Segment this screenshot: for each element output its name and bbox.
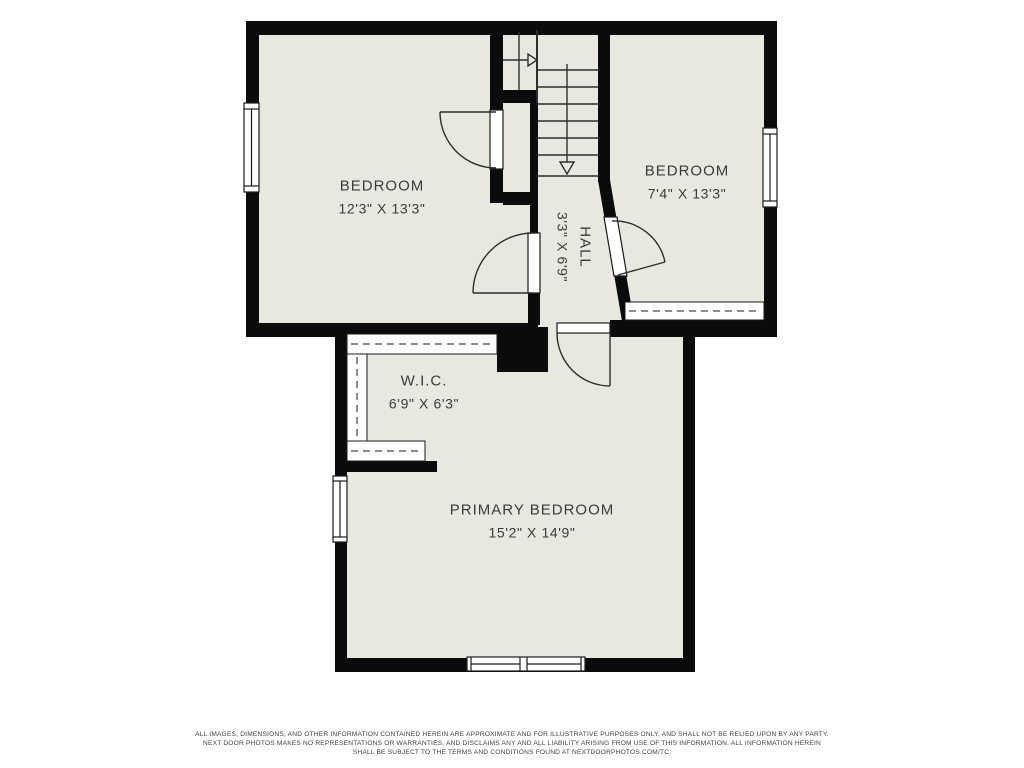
bedroom-hall-wall-stub [528, 293, 540, 325]
window-bedroom-right [763, 128, 777, 207]
upper-top-wall-thin [503, 21, 538, 27]
disclaimer-line-1: ALL IMAGES, DIMENSIONS, AND OTHER INFORM… [0, 731, 1024, 740]
stair-right-wall [598, 30, 610, 182]
room-dimensions: 3'3" X 6'9" [555, 212, 571, 282]
room-dimensions: 6'9" X 6'3" [389, 396, 459, 412]
label-bedroom-left: BEDROOM 12'3" X 13'3" [339, 178, 426, 217]
disclaimer-line-3: SHALL BE SUBJECT TO THE TERMS AND CONDIT… [0, 749, 1024, 758]
window-primary-bottom [467, 657, 585, 671]
wic-shelf-bottom [347, 441, 425, 461]
room-name: BEDROOM [645, 163, 730, 180]
wic-bottom-wall [347, 461, 437, 472]
landing-divider-wall [536, 30, 538, 103]
window-primary-left [333, 476, 347, 542]
bedroom-hall-wall [530, 205, 538, 235]
closet-right-wall [530, 100, 538, 205]
disclaimer-text: ALL IMAGES, DIMENSIONS, AND OTHER INFORM… [0, 731, 1024, 757]
room-name: W.I.C. [389, 373, 459, 390]
chimney-block [497, 327, 548, 372]
label-hall: HALL 3'3" X 6'9" [555, 212, 594, 282]
label-primary-bedroom: PRIMARY BEDROOM 15'2" X 14'9" [450, 502, 614, 541]
room-dimensions: 12'3" X 13'3" [339, 201, 426, 217]
floor-plan-graphic [0, 0, 1024, 768]
closet-bottom-wall [503, 192, 538, 205]
room-name: PRIMARY BEDROOM [450, 502, 614, 519]
wic-shelf-top [347, 334, 497, 354]
room-name: HALL [577, 212, 594, 282]
closet-bedroom-right [625, 302, 764, 320]
room-dimensions: 7'4" X 13'3" [645, 186, 730, 202]
lower-right-wall [683, 330, 695, 672]
room-name: BEDROOM [339, 178, 426, 195]
label-wic: W.I.C. 6'9" X 6'3" [389, 373, 459, 412]
window-bedroom-left [244, 103, 259, 192]
disclaimer-line-2: NEXT DOOR PHOTOS MAKES NO REPRESENTATION… [0, 740, 1024, 749]
label-bedroom-right: BEDROOM 7'4" X 13'3" [645, 163, 730, 202]
wic-shelf-left [347, 354, 367, 441]
floor-plan-page: BEDROOM 12'3" X 13'3" BEDROOM 7'4" X 13'… [0, 0, 1024, 768]
room-dimensions: 15'2" X 14'9" [450, 525, 614, 541]
